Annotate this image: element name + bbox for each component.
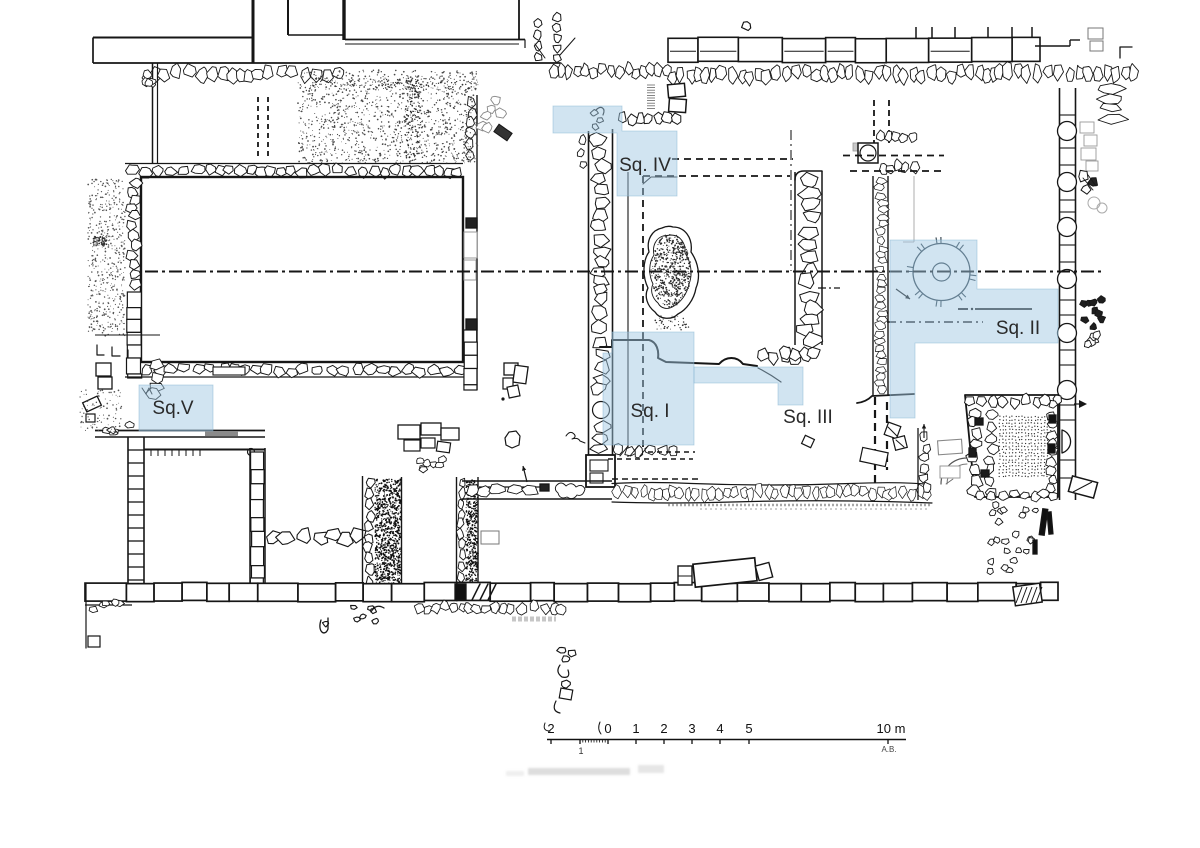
label-sq5: Sq.V [152, 398, 194, 419]
label-sq2: Sq. II [996, 318, 1040, 339]
site-plan: Sq. IV Sq. I Sq. III Sq. II Sq.V 2 0 1 2… [0, 0, 1200, 848]
label-sq3: Sq. III [783, 407, 833, 428]
scale-num-0: 0 [604, 721, 611, 736]
ghost-marks [506, 765, 664, 776]
scale-num-m2: 2 [547, 721, 554, 736]
ghost-smudge [506, 771, 524, 776]
ghost-smudge [528, 768, 630, 775]
label-sq1: Sq. I [630, 401, 669, 422]
scale-num-5: 5 [745, 721, 752, 736]
scale-credit: A.B. [881, 745, 896, 754]
label-sq4: Sq. IV [619, 155, 671, 176]
scale-bar: 2 0 1 2 3 4 5 10 m 1 A.B. [547, 721, 906, 756]
scale-num-2: 2 [660, 721, 667, 736]
excavation-square-sq1 [603, 332, 694, 445]
scale-num-4: 4 [716, 721, 723, 736]
ghost-smudge [638, 765, 664, 773]
scale-num-below-1: 1 [578, 746, 583, 756]
scale-num-1: 1 [632, 721, 639, 736]
excavation-square-sq3 [694, 367, 803, 405]
scale-num-3: 3 [688, 721, 695, 736]
scale-num-10m: 10 m [877, 721, 906, 736]
